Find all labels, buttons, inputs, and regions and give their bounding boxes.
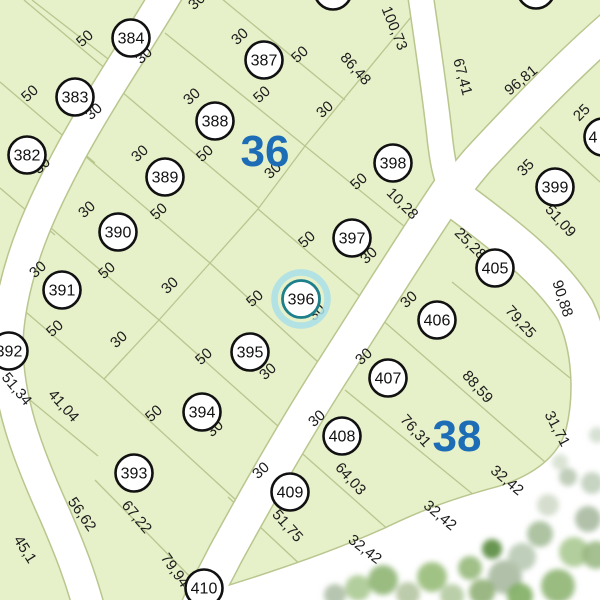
lot-marker[interactable]: 383	[57, 79, 94, 116]
lot-marker[interactable]: 388	[197, 103, 234, 140]
lot-number: 384	[118, 31, 145, 48]
lot-marker[interactable]: 382	[9, 137, 46, 174]
block-number-36: 36	[241, 127, 290, 176]
lot-number: 392	[0, 344, 22, 361]
lot-marker[interactable]: 408	[324, 418, 361, 455]
lot-number: 4	[589, 130, 598, 147]
lot-number: 395	[237, 345, 264, 362]
lot-marker[interactable]: 391	[44, 272, 81, 309]
lot-number: 406	[424, 313, 451, 330]
lot-number: 387	[251, 53, 278, 70]
lot-marker[interactable]: 397	[334, 220, 371, 257]
lot-marker[interactable]: 399	[537, 169, 574, 206]
parcel-map[interactable]: 50305030503030305086,48100,7367,4196,813…	[0, 0, 600, 600]
lot-marker[interactable]: 384	[113, 20, 150, 57]
lot-number: 405	[482, 261, 509, 278]
lot-number: 382	[14, 148, 41, 165]
lot-number: 391	[49, 283, 76, 300]
lot-number: 388	[202, 114, 229, 131]
lot-number: 410	[191, 581, 218, 598]
lot-marker[interactable]: 409	[272, 474, 309, 511]
lot-marker[interactable]: 393	[116, 455, 153, 492]
lot-marker[interactable]: 398	[375, 145, 412, 182]
lot-number: 393	[121, 466, 148, 483]
lot-number: 398	[380, 156, 407, 173]
lot-marker[interactable]: 395	[232, 334, 269, 371]
parcel-map-canvas[interactable]: 50305030503030305086,48100,7367,4196,813…	[0, 0, 600, 600]
lot-marker-selected[interactable]: 396	[275, 273, 328, 326]
lot-number: 409	[277, 485, 304, 502]
lot-number: 397	[339, 231, 366, 248]
lot-number: 399	[542, 180, 569, 197]
lot-marker[interactable]: 392	[0, 333, 28, 370]
lot-marker[interactable]: 406	[419, 302, 456, 339]
lot-number: 394	[189, 405, 216, 422]
lot-number: 396	[288, 292, 315, 309]
lot-number: 389	[152, 170, 179, 187]
lot-marker[interactable]: 394	[184, 394, 221, 431]
lot-marker[interactable]: 389	[147, 159, 184, 196]
lot-marker[interactable]: 387	[246, 42, 283, 79]
lot-number: 390	[105, 225, 132, 242]
lot-number: 383	[62, 90, 89, 107]
lot-marker[interactable]: 410	[186, 570, 223, 600]
lot-marker[interactable]: 390	[100, 214, 137, 251]
lot-number: 408	[329, 429, 356, 446]
lot-number: 407	[375, 371, 402, 388]
block-number-38: 38	[433, 412, 482, 461]
lot-marker[interactable]: 405	[477, 250, 514, 287]
lot-marker[interactable]: 407	[370, 360, 407, 397]
